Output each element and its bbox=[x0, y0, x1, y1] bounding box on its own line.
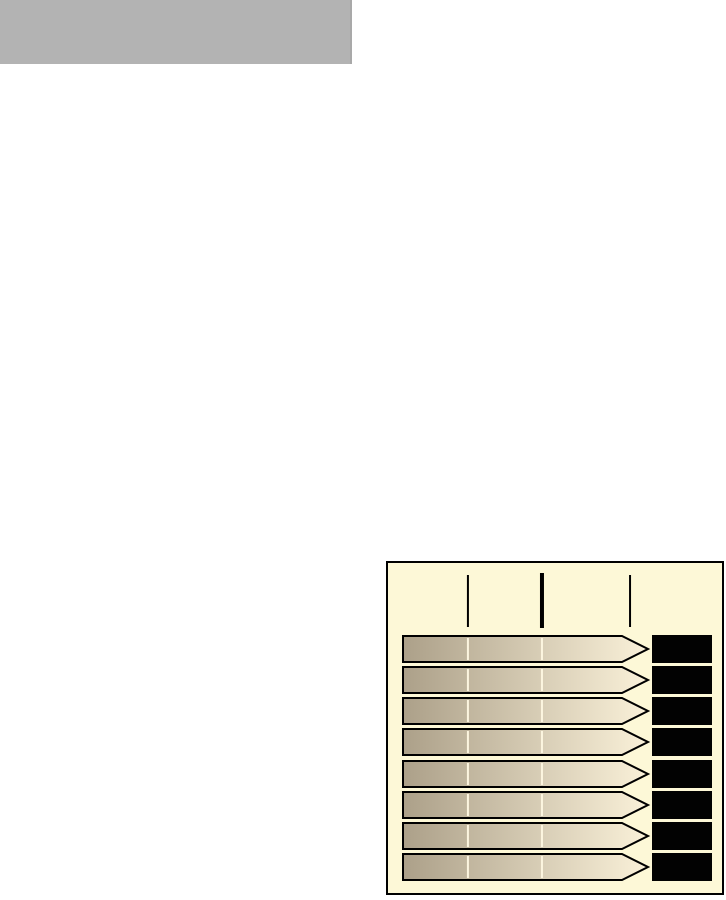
value-box bbox=[652, 822, 712, 850]
value-box bbox=[652, 697, 712, 725]
header-placeholder-block bbox=[0, 0, 352, 64]
arrow-bar-row bbox=[403, 761, 648, 787]
scale-ticks bbox=[468, 573, 630, 628]
arrow-bar bbox=[403, 792, 648, 818]
arrow-bars bbox=[403, 636, 648, 880]
value-box bbox=[652, 728, 712, 756]
arrow-bar-row bbox=[403, 729, 648, 755]
value-box bbox=[652, 666, 712, 694]
arrow-bar-row bbox=[403, 636, 648, 662]
arrow-bar-row bbox=[403, 792, 648, 818]
value-box bbox=[652, 853, 712, 881]
arrow-bar bbox=[403, 729, 648, 755]
arrow-bar bbox=[403, 823, 648, 849]
value-box bbox=[652, 635, 712, 663]
value-box bbox=[652, 760, 712, 788]
arrow-bar bbox=[403, 761, 648, 787]
value-boxes bbox=[652, 635, 712, 881]
arrow-bar bbox=[403, 854, 648, 880]
value-box bbox=[652, 791, 712, 819]
arrow-bar bbox=[403, 667, 648, 693]
arrow-bar-row bbox=[403, 667, 648, 693]
arrow-bar-row bbox=[403, 854, 648, 880]
arrow-bar bbox=[403, 636, 648, 662]
arrow-bar-row bbox=[403, 698, 648, 724]
arrow-gauge-chart bbox=[388, 563, 722, 893]
arrow-bar-row bbox=[403, 823, 648, 849]
arrow-bar bbox=[403, 698, 648, 724]
gauge-chart-panel bbox=[386, 561, 724, 895]
